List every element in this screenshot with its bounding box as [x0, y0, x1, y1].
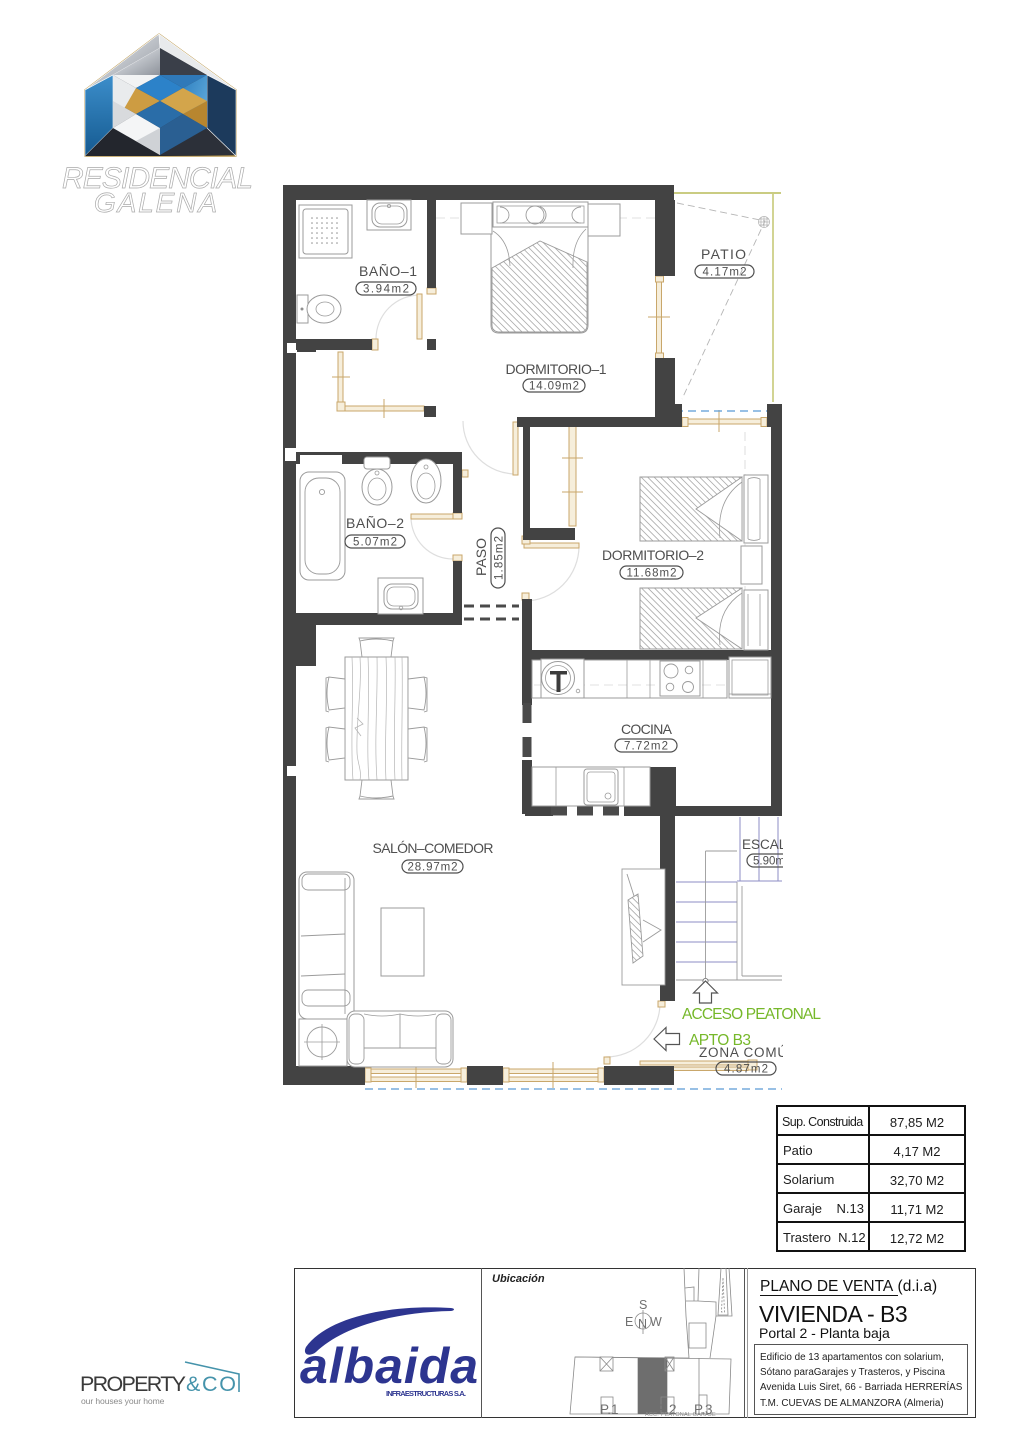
svg-text:ESCALERA: ESCALERA — [742, 837, 814, 852]
svg-text:&CO: &CO — [186, 1372, 236, 1396]
svg-text:S: S — [639, 1298, 647, 1312]
svg-text:4.17m2: 4.17m2 — [703, 267, 747, 279]
svg-text:albaida: albaida — [300, 1338, 477, 1394]
svg-text:COCINA: COCINA — [621, 721, 673, 737]
svg-text:5.90m2: 5.90m2 — [753, 856, 791, 868]
svg-text:DORMITORIO–1: DORMITORIO–1 — [506, 361, 607, 377]
svg-text:ACC. PEATONAL GARAJE: ACC. PEATONAL GARAJE — [645, 1412, 716, 1417]
svg-text:our houses your home: our houses your home — [81, 1396, 165, 1406]
svg-text:BAÑO–1: BAÑO–1 — [359, 263, 417, 279]
svg-text:14.09m2: 14.09m2 — [529, 381, 579, 393]
svg-text:1.85m2: 1.85m2 — [494, 536, 506, 580]
svg-text:11.68m2: 11.68m2 — [627, 568, 677, 580]
svg-text:E: E — [625, 1315, 633, 1329]
svg-text:5.07m2: 5.07m2 — [353, 537, 397, 549]
svg-text:BAÑO–2: BAÑO–2 — [346, 515, 404, 531]
svg-text:SALÓN–COMEDOR: SALÓN–COMEDOR — [373, 840, 494, 856]
svg-text:28.97m2: 28.97m2 — [408, 862, 458, 874]
svg-text:W: W — [650, 1315, 662, 1329]
svg-text:APTO B3: APTO B3 — [689, 1032, 751, 1049]
svg-text:PATIO: PATIO — [701, 246, 747, 262]
svg-text:PROPERTY: PROPERTY — [80, 1372, 186, 1396]
svg-text:PASO: PASO — [473, 538, 489, 576]
svg-text:ACCESO PEATONAL: ACCESO PEATONAL — [682, 1006, 821, 1023]
svg-text:7.72m2: 7.72m2 — [624, 741, 668, 753]
svg-text:P.1: P.1 — [600, 1402, 619, 1417]
svg-text:4.87m2: 4.87m2 — [724, 1064, 768, 1076]
svg-text:3.94m2: 3.94m2 — [363, 284, 409, 296]
svg-text:INFRAESTRUCTURAS S.A.: INFRAESTRUCTURAS S.A. — [386, 1389, 466, 1398]
svg-text:DORMITORIO–2: DORMITORIO–2 — [602, 547, 704, 563]
